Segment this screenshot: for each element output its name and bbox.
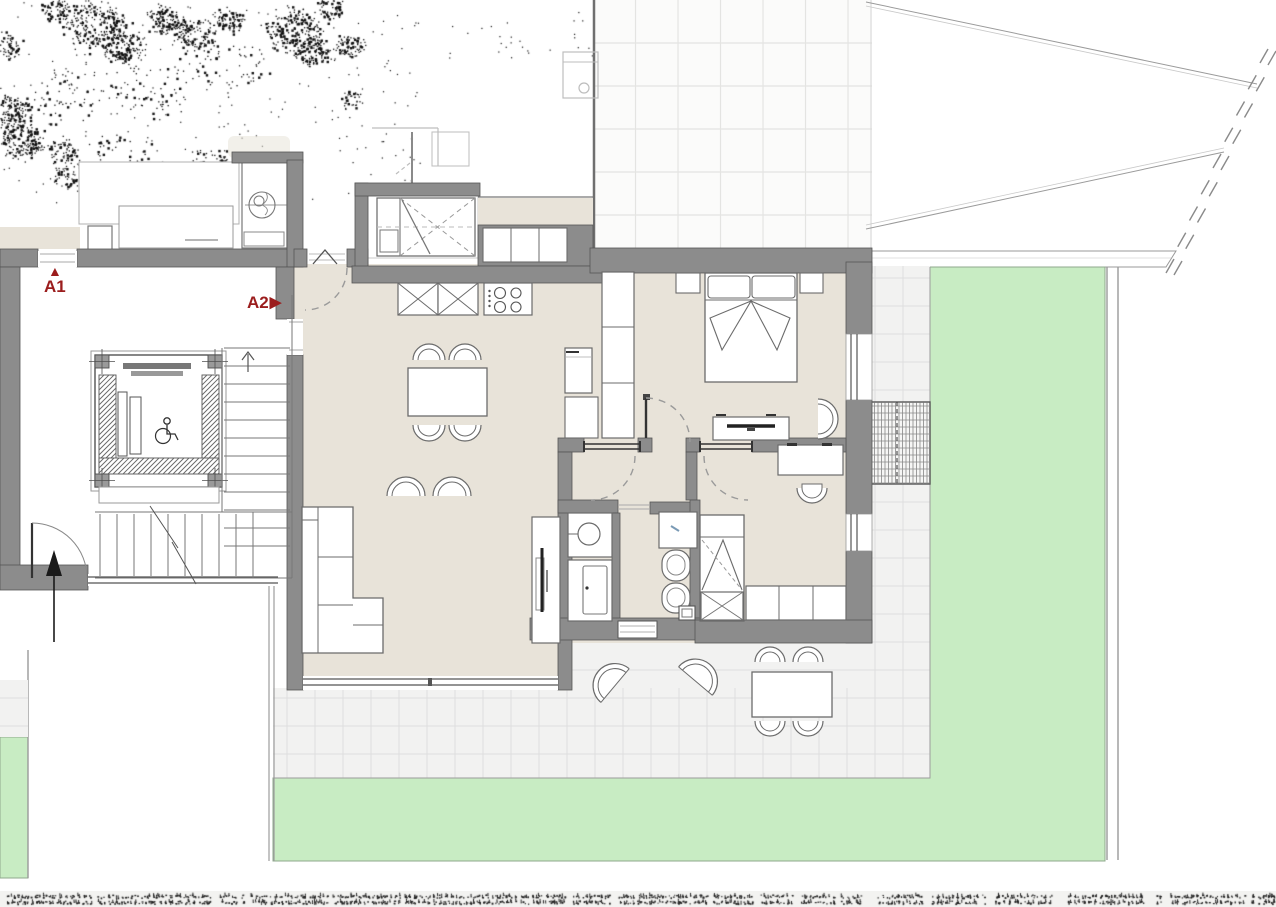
storage-wardrobe xyxy=(377,198,475,256)
single-bed-icon xyxy=(700,515,744,621)
site-boundary-lines xyxy=(866,2,1276,275)
floor-plan-drawing xyxy=(0,0,1276,907)
tv-console-icon xyxy=(713,415,789,440)
upper-terrace-tiles xyxy=(593,0,872,250)
floor-plan-page: ▲ A1 A2 ▶ xyxy=(0,0,1276,907)
survey-noise-strip xyxy=(0,891,1276,907)
elevator-core xyxy=(89,349,228,503)
unit-label-a1: ▲ A1 xyxy=(44,264,66,295)
a1-text: A1 xyxy=(44,277,66,296)
a2-text: A2 xyxy=(247,294,269,311)
a1-direction-icon: ▲ xyxy=(44,264,66,278)
double-bed-icon xyxy=(705,273,797,382)
cooktop-icon xyxy=(484,283,532,315)
a2-direction-icon: ▶ xyxy=(270,295,282,310)
pergola-grid xyxy=(868,402,930,484)
tv-cabinet-icon xyxy=(532,517,560,643)
ghost-upper-floor xyxy=(372,52,598,188)
unit-label-a2: A2 ▶ xyxy=(247,294,281,311)
